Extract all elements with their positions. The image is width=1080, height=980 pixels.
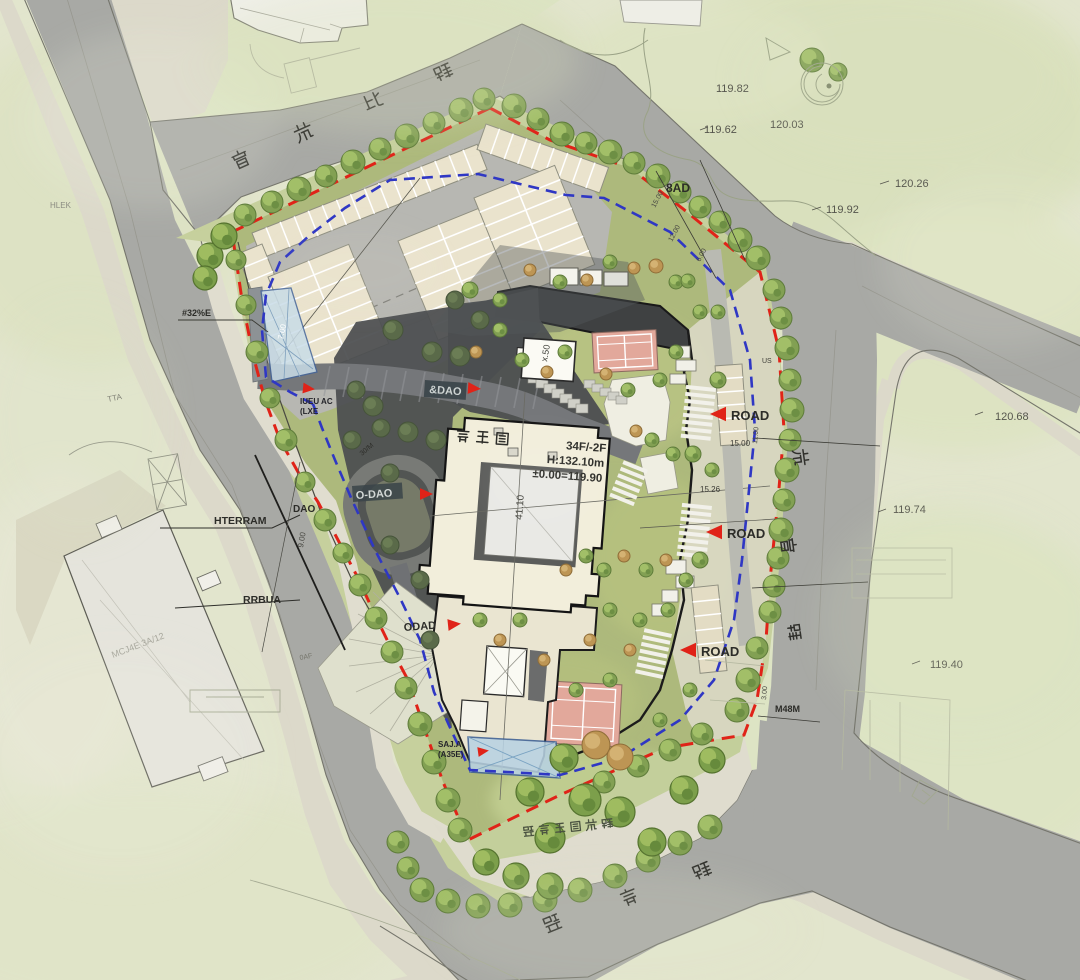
- svg-text:ROAD: ROAD: [701, 644, 739, 659]
- svg-text:119.62: 119.62: [704, 124, 737, 136]
- svg-text:HLEK: HLEK: [50, 201, 72, 210]
- svg-text:11.00: 11.00: [752, 427, 760, 445]
- svg-text:ROAD: ROAD: [727, 526, 765, 541]
- svg-text:(A35E): (A35E): [438, 750, 464, 759]
- svg-text:SAJ.A: SAJ.A: [438, 740, 462, 749]
- svg-text:M48M: M48M: [775, 704, 800, 714]
- svg-text:120.68: 120.68: [995, 411, 1029, 423]
- svg-text:RRBUA: RRBUA: [243, 594, 281, 606]
- svg-text:15.26: 15.26: [700, 485, 721, 494]
- svg-text:#32%E: #32%E: [182, 308, 211, 318]
- svg-text:DAO: DAO: [293, 504, 315, 515]
- svg-text:HTERRAM: HTERRAM: [214, 515, 267, 527]
- svg-text:3.00: 3.00: [761, 686, 769, 700]
- svg-text:8AD: 8AD: [666, 181, 690, 195]
- svg-text:120.26: 120.26: [895, 178, 929, 190]
- svg-text:ROAD: ROAD: [731, 408, 769, 423]
- svg-text:(LXE: (LXE: [300, 407, 319, 416]
- svg-text:ODAD: ODAD: [403, 620, 436, 634]
- svg-text:119.92: 119.92: [826, 204, 859, 216]
- svg-text:15.00: 15.00: [730, 439, 751, 448]
- svg-text:IUEU AC: IUEU AC: [300, 397, 333, 406]
- svg-text:US: US: [762, 358, 772, 365]
- svg-text:&DAO: &DAO: [429, 384, 463, 398]
